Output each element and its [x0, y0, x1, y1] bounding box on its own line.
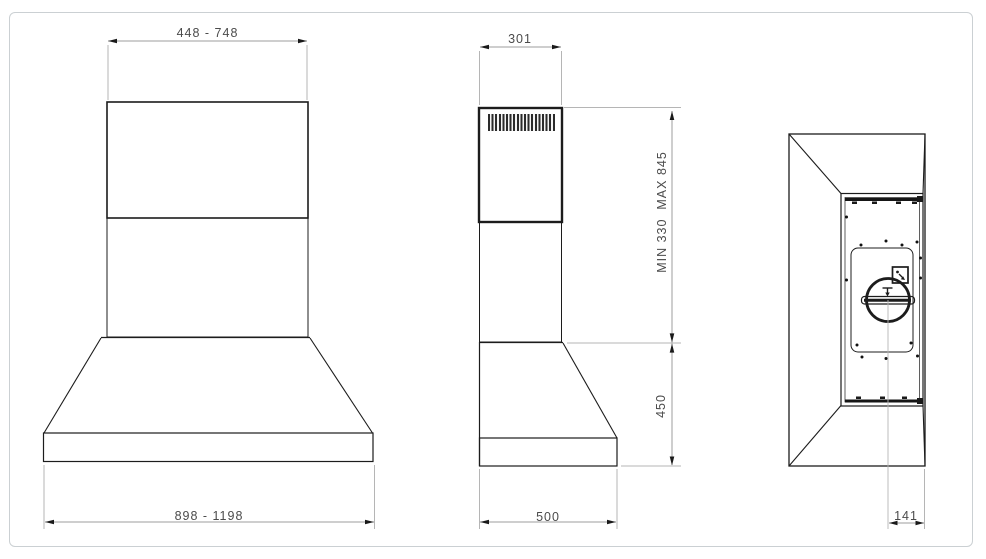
top-view	[789, 134, 925, 466]
side-view	[479, 108, 617, 466]
side-base-box	[480, 438, 618, 466]
front-dimension-lines	[44, 41, 375, 529]
dim-label-chimney-depth: 301	[508, 33, 532, 46]
drawing-views	[0, 0, 986, 559]
front-canopy	[44, 338, 373, 434]
dim-label-chimney-width: 448 - 748	[177, 27, 239, 40]
side-chimney-lower	[480, 222, 562, 342]
airflow-arrow-icon	[883, 288, 893, 297]
side-canopy	[479, 342, 617, 466]
dim-label-body-width: 898 - 1198	[175, 509, 244, 522]
dim-label-outlet-offset: 141	[894, 509, 918, 522]
dim-label-chimney-height-range: MIN 330 MAX 845	[655, 151, 668, 273]
dim-label-canopy-height: 450	[654, 394, 667, 418]
front-base-box	[44, 433, 374, 462]
top-dimension-lines	[888, 300, 925, 529]
vent-grille-icon	[488, 114, 555, 131]
dim-label-body-depth: 500	[536, 510, 560, 523]
front-dimension-arrows	[45, 39, 374, 525]
cooker-hood-technical-drawing: 448 - 748 898 - 1198 301 500 MIN 330 MAX…	[0, 0, 986, 559]
front-chimney-upper	[107, 102, 308, 218]
front-view	[44, 102, 374, 462]
front-chimney-lower	[107, 218, 308, 337]
